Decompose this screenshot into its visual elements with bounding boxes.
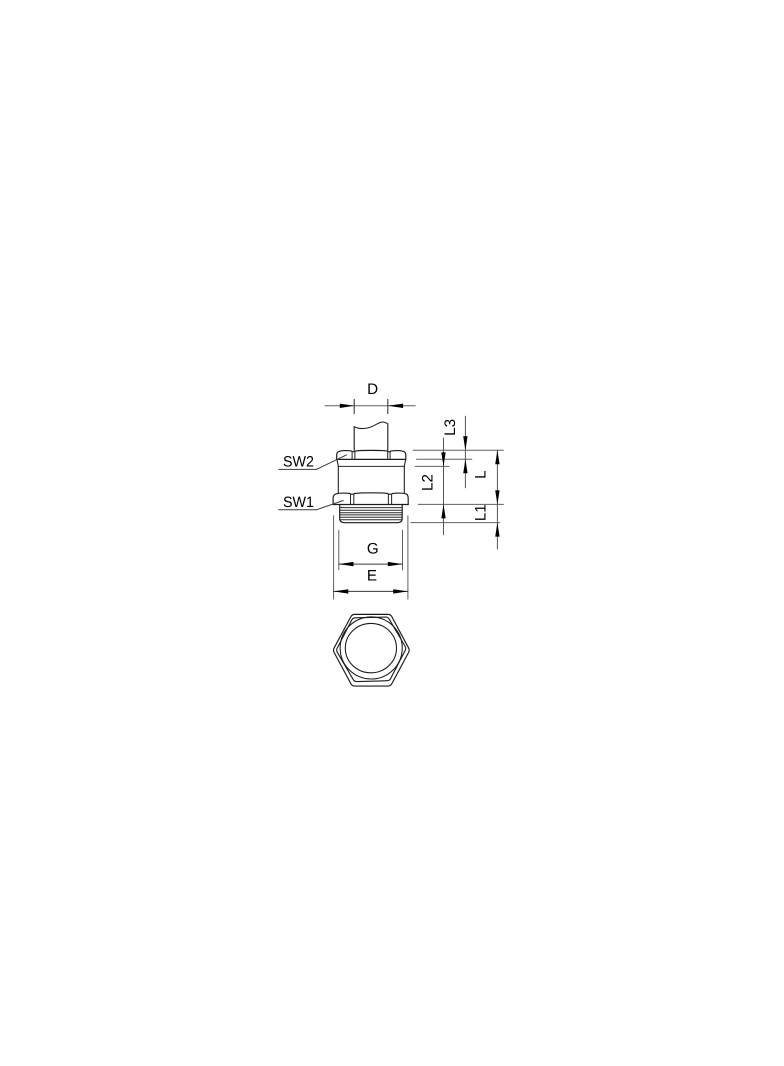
svg-text:L: L [473,470,490,478]
svg-text:E: E [367,567,377,584]
svg-text:SW2: SW2 [283,454,314,471]
svg-text:L3: L3 [442,419,459,436]
svg-text:G: G [367,541,379,558]
svg-text:D: D [367,381,378,398]
svg-text:L2: L2 [420,474,437,491]
svg-text:SW1: SW1 [283,494,314,511]
svg-text:L1: L1 [472,504,489,521]
